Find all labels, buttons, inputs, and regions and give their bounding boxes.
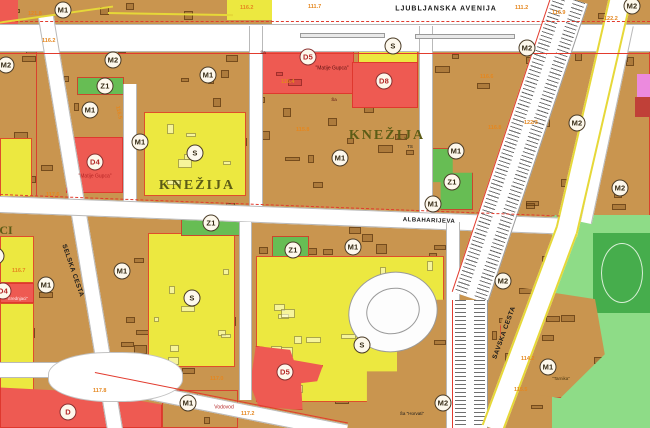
spot-elevation: 116.6 [480, 75, 493, 81]
spot-elevation: 115.8 [296, 128, 309, 134]
zone-label-circle-s: S [385, 38, 402, 55]
spot-elevation: 117.8 [93, 389, 106, 395]
building-footprint [154, 317, 159, 322]
sports-field-marking [601, 243, 643, 303]
zone-label-circle-z1: Z1 [97, 78, 114, 95]
school-label-matije-gupca-2: "Matije Gupca" [315, 67, 348, 72]
zone-label-circle-m1: M1 [332, 150, 349, 167]
building-footprint [134, 258, 143, 262]
zone-label-circle-m2: M2 [612, 180, 629, 197]
district-label-knezija-east: KNEŽIJA [349, 129, 425, 143]
building-footprint [294, 336, 302, 344]
zone-label-circle-d: D [60, 404, 77, 421]
spot-elevation: 111.2 [515, 6, 528, 12]
zone-label-circle-m2: M2 [569, 115, 586, 132]
building-footprint [276, 72, 282, 76]
building-footprint [285, 157, 300, 161]
building-footprint [427, 261, 433, 271]
zone-boundary-red-line [0, 53, 650, 54]
zone-label-circle-z1: Z1 [285, 242, 302, 259]
zone-label-circle-m1: M1 [82, 102, 99, 119]
facility-label-vodovod: Vodovod [214, 406, 233, 411]
zone-label-circle-m1: M1 [55, 2, 72, 19]
zone-sports-field [593, 233, 650, 313]
building-footprint [349, 227, 361, 234]
school-label-matije-gupca-1: "Matije Gupca" [78, 175, 111, 180]
school-label-srednjaci: "Srednjaci" [6, 297, 28, 302]
building-footprint [281, 309, 295, 318]
zone-label-circle-d8: D8 [376, 73, 393, 90]
building-footprint [306, 337, 321, 343]
building-footprint [221, 70, 229, 78]
zone-boundary-red-line [0, 21, 650, 22]
zone-label-circle-s: S [354, 337, 371, 354]
building-footprint [313, 182, 323, 188]
zone-label-circle-d4: D4 [87, 154, 104, 171]
zone-label-circle-d5: D5 [277, 364, 294, 381]
building-footprint [41, 165, 54, 171]
railway-hatch [474, 300, 486, 428]
building-footprint [323, 249, 333, 255]
school-mark-horvati: Ša "Horvati" [400, 412, 424, 417]
building-footprint [126, 3, 134, 10]
building-footprint [542, 335, 553, 340]
zone-label-circle-m1: M1 [448, 143, 465, 160]
building-footprint [221, 334, 231, 339]
building-footprint [22, 56, 35, 62]
street-label-ljubljanska-avenija: LJUBLJANSKA AVENIJA [395, 6, 497, 13]
building-footprint [492, 331, 498, 340]
building-footprint [223, 161, 230, 166]
road-street-4 [239, 222, 252, 400]
zone-label-circle-m2: M2 [435, 395, 452, 412]
spot-elevation: 116.4 [281, 80, 294, 86]
building-footprint [378, 145, 392, 152]
building-footprint [283, 108, 290, 116]
building-footprint [181, 306, 195, 313]
railway-segment-2 [452, 300, 488, 428]
building-footprint [435, 66, 450, 73]
building-footprint [213, 98, 221, 107]
zone-label-circle-m1: M1 [132, 134, 149, 151]
building-footprint [308, 155, 314, 163]
spot-elevation: 116.9 [552, 11, 565, 17]
building-footprint [561, 315, 575, 322]
road-median-2 [415, 34, 515, 39]
spot-elevation: 115.5 [514, 388, 527, 394]
zone-dred-zone [635, 97, 650, 117]
building-footprint [406, 150, 414, 155]
spot-elevation: 121.8 [28, 12, 42, 18]
building-footprint [531, 405, 543, 410]
building-footprint [181, 78, 189, 82]
building-footprint [182, 368, 195, 374]
zone-label-circle-s: S [187, 145, 204, 162]
zone-label-circle-z1: Z1 [444, 174, 461, 191]
building-footprint [259, 247, 269, 254]
district-label-srednjaci-partial: CI [0, 224, 13, 236]
building-footprint [376, 244, 387, 254]
zone-label-circle-m1: M1 [114, 263, 131, 280]
spot-elevation: 111.7 [308, 5, 321, 11]
facility-label-tarnika: "Tarnika" [552, 377, 570, 382]
spot-elevation: 117.0 [210, 377, 223, 383]
zone-label-circle-z1: Z1 [203, 215, 220, 232]
building-footprint [626, 57, 634, 66]
zone-label-circle-m1: M1 [180, 395, 197, 412]
building-footprint [74, 103, 79, 110]
zone-label-circle-m1: M1 [345, 239, 362, 256]
railway-hatch [455, 300, 467, 428]
zone-label-circle-m2: M2 [105, 52, 122, 69]
zone-label-circle-s: S [184, 290, 201, 307]
district-label-knezija-west: KNEŽIJA [159, 179, 235, 193]
building-footprint [612, 204, 626, 211]
spot-elevation: 116.2 [42, 39, 55, 45]
building-footprint [121, 342, 134, 347]
building-footprint [526, 201, 539, 206]
zone-label-circle-m2: M2 [519, 40, 536, 57]
spot-elevation: 117.6 [46, 193, 59, 199]
spot-elevation: 122.2 [604, 17, 618, 23]
zone-left-yellow-b [0, 236, 34, 283]
zone-pink-zone [637, 74, 650, 97]
building-footprint [434, 245, 446, 251]
building-footprint [434, 340, 446, 345]
building-footprint [126, 317, 134, 323]
building-footprint [223, 269, 229, 276]
building-footprint [226, 55, 238, 62]
school-mark-1: Ša [260, 51, 266, 56]
substation-label-ts: TS [407, 145, 413, 150]
spot-elevation: 114.2 [521, 357, 534, 363]
building-footprint [308, 248, 317, 255]
building-footprint [167, 124, 175, 134]
spot-elevation: 116.7 [12, 269, 25, 275]
building-footprint [204, 417, 210, 424]
building-footprint [328, 118, 337, 126]
zone-label-circle-m1: M1 [38, 277, 55, 294]
spot-elevation: 116.8 [488, 126, 501, 132]
road-median-1 [300, 33, 385, 38]
spot-elevation: 116.2 [240, 6, 253, 12]
zone-label-circle-m1: M1 [200, 67, 217, 84]
zone-label-circle-m1: M1 [540, 359, 557, 376]
building-footprint [362, 234, 373, 242]
building-footprint [477, 83, 490, 89]
building-footprint [546, 316, 559, 323]
spot-elevation: 117.2 [241, 412, 254, 418]
building-footprint [170, 345, 179, 352]
building-footprint [452, 54, 459, 59]
zone-label-circle-m2: M2 [495, 273, 512, 290]
map-canvas[interactable]: LJUBLJANSKA AVENIJAKNEŽIJAKNEŽIJASELSKA … [0, 0, 650, 428]
building-footprint [169, 286, 176, 294]
zone-label-circle-m1: M1 [425, 196, 442, 213]
building-footprint [186, 133, 197, 137]
spot-elevation: 122/3 [524, 121, 538, 127]
school-mark-2: Ša [331, 98, 337, 103]
zone-label-circle-d5: D5 [300, 49, 317, 66]
road-street-3 [419, 26, 433, 216]
